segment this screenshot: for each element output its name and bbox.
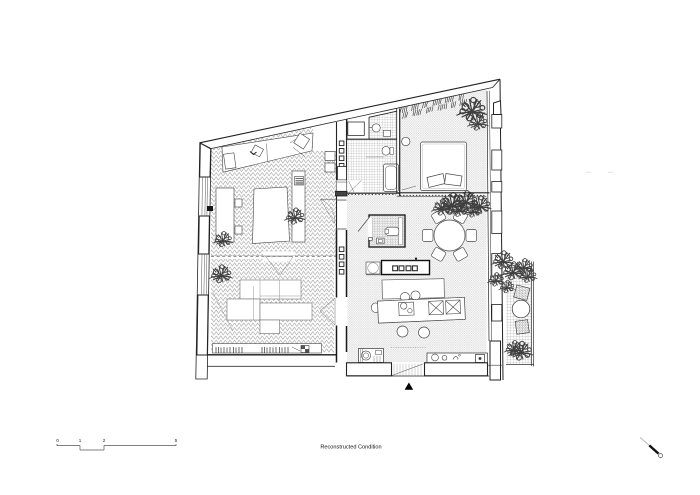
svg-text:2: 2 [103, 438, 106, 443]
svg-text:1: 1 [79, 438, 82, 443]
svg-text:Reconstructed Condition: Reconstructed Condition [320, 445, 381, 451]
svg-text:5: 5 [175, 438, 178, 443]
svg-text:0: 0 [56, 438, 59, 443]
